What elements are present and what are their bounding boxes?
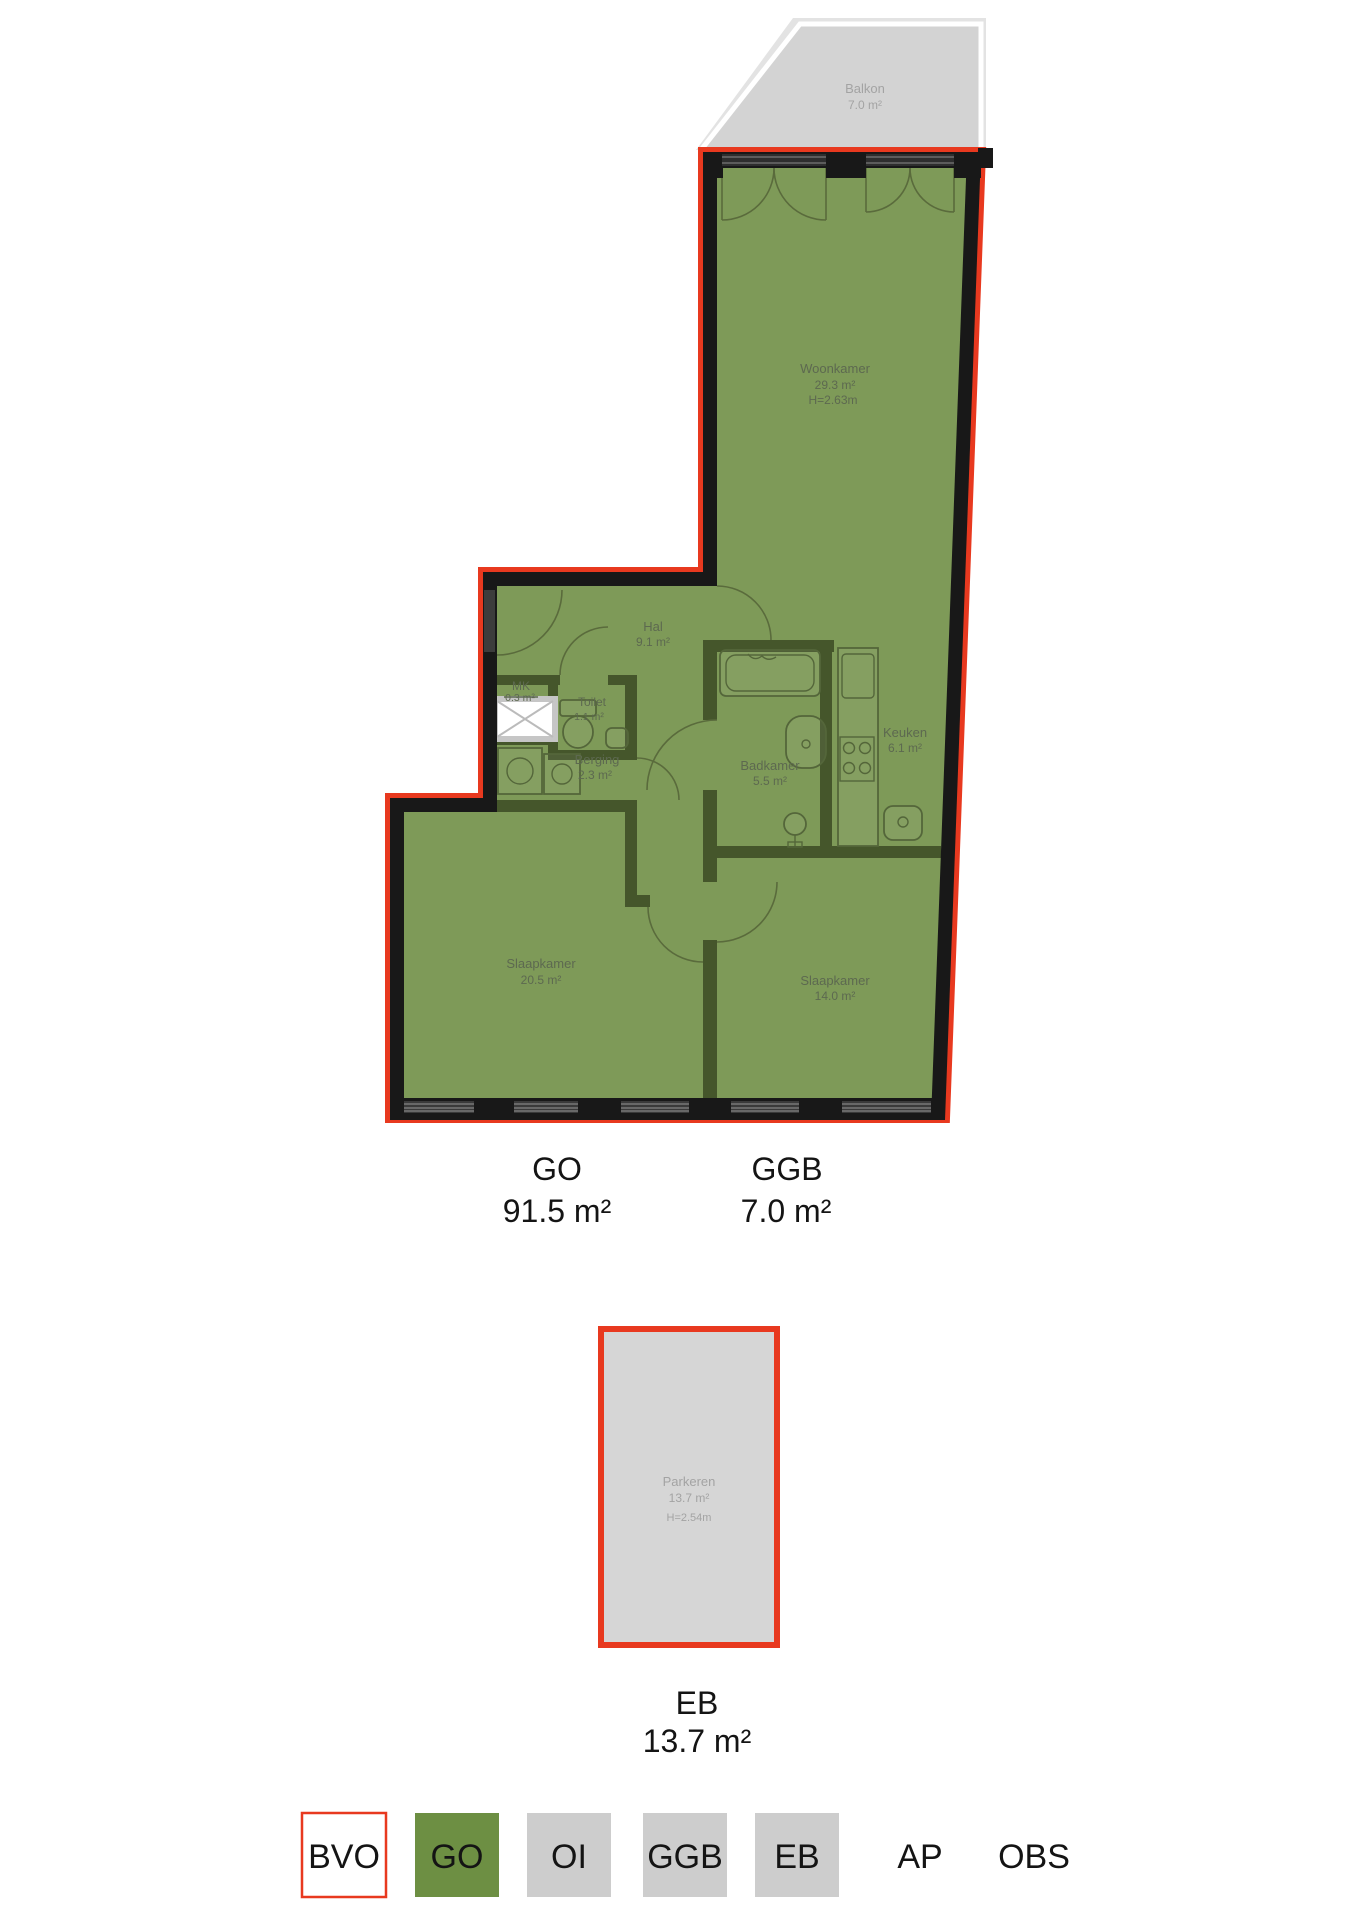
wc-icon: [784, 813, 806, 835]
slaapkamer1-name: Slaapkamer: [506, 956, 576, 971]
badkamer-name: Badkamer: [740, 758, 800, 773]
hal-area: 9.1 m²: [636, 635, 670, 649]
go-area: 91.5 m²: [503, 1193, 612, 1229]
woonkamer-name: Woonkamer: [800, 361, 871, 376]
floorplan-svg: Balkon 7.0 m²: [0, 0, 1358, 1920]
bathtub-icon: [720, 650, 820, 696]
slaapkamer1-area: 20.5 m²: [521, 973, 562, 987]
legend-label-ggb: GGB: [647, 1838, 723, 1876]
mk-name: MK: [512, 679, 530, 693]
toilet-sink-icon: [606, 728, 628, 748]
toilet-name: Toilet: [578, 695, 607, 709]
kitchen-sink-icon: [884, 806, 922, 840]
room-balkon: Balkon 7.0 m²: [696, 18, 986, 150]
woonkamer-height: H=2.63m: [808, 393, 857, 407]
shaft-box: [495, 699, 555, 739]
parkeren-area: 13.7 m²: [669, 1491, 710, 1505]
legend-label-bvo: BVO: [308, 1838, 380, 1876]
legend-label-ap: AP: [897, 1838, 942, 1876]
summary-labels: GO 91.5 m² GGB 7.0 m²: [503, 1151, 832, 1229]
legend-label-obs: OBS: [998, 1838, 1070, 1876]
balkon-area: 7.0 m²: [848, 98, 882, 112]
ggb-label: GGB: [751, 1151, 822, 1187]
parkeren-name: Parkeren: [663, 1474, 716, 1489]
mk-area: 0.3 m²: [505, 692, 535, 704]
toilet-area: 1.1 m²: [574, 711, 604, 723]
slaapkamer2-name: Slaapkamer: [800, 973, 870, 988]
legend-label-go: GO: [431, 1838, 484, 1876]
entrance-door: [484, 590, 495, 652]
slaapkamer2-area: 14.0 m²: [815, 989, 856, 1003]
eb-summary: EB 13.7 m²: [643, 1685, 752, 1759]
badkamer-area: 5.5 m²: [753, 774, 787, 788]
go-label: GO: [532, 1151, 582, 1187]
floorplan-page: Balkon 7.0 m²: [0, 0, 1358, 1920]
ggb-area: 7.0 m²: [741, 1193, 832, 1229]
eb-label: EB: [676, 1685, 719, 1721]
room-parkeren: Parkeren 13.7 m² H=2.54m: [601, 1329, 777, 1645]
eb-area: 13.7 m²: [643, 1723, 752, 1759]
balkon-name: Balkon: [845, 81, 885, 96]
berging-area: 2.3 m²: [578, 768, 612, 782]
washer-icon: [498, 748, 542, 794]
woonkamer-area: 29.3 m²: [815, 378, 856, 392]
legend: BVO GO OI GGB EB AP OBS: [302, 1813, 1070, 1897]
keuken-area: 6.1 m²: [888, 741, 922, 755]
legend-label-eb: EB: [774, 1838, 819, 1876]
berging-name: Berging: [575, 752, 620, 767]
legend-label-oi: OI: [551, 1838, 587, 1876]
parkeren-height: H=2.54m: [667, 1512, 712, 1524]
bvo-outline: [390, 152, 981, 1118]
hal-name: Hal: [643, 619, 663, 634]
keuken-name: Keuken: [883, 725, 927, 740]
